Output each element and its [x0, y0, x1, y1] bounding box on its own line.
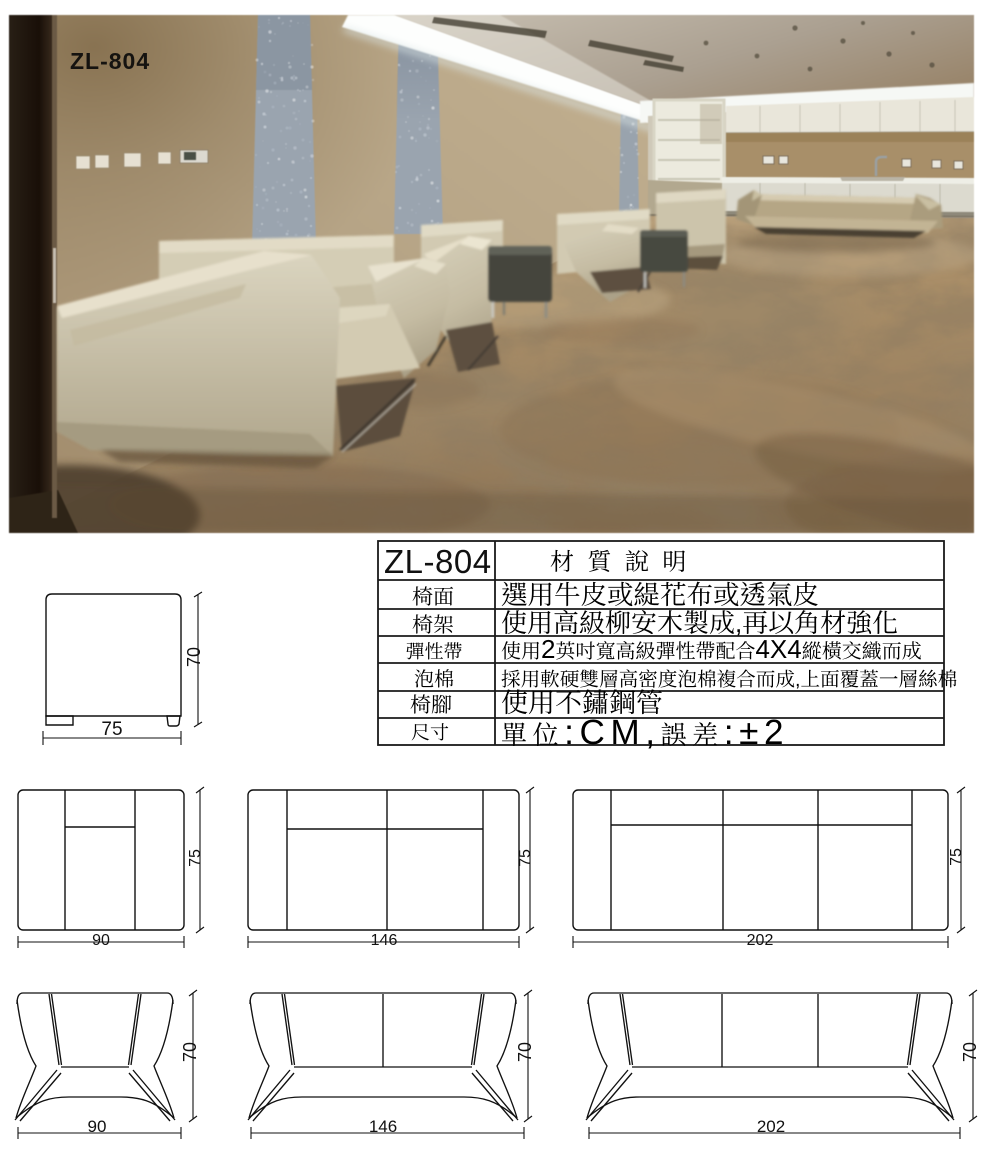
svg-text:202: 202 — [757, 1117, 785, 1136]
svg-text:70: 70 — [180, 1042, 200, 1062]
svg-text:146: 146 — [369, 1117, 397, 1136]
svg-text:90: 90 — [88, 1117, 107, 1136]
svg-text:70: 70 — [515, 1042, 535, 1062]
svg-text:70: 70 — [960, 1042, 980, 1062]
